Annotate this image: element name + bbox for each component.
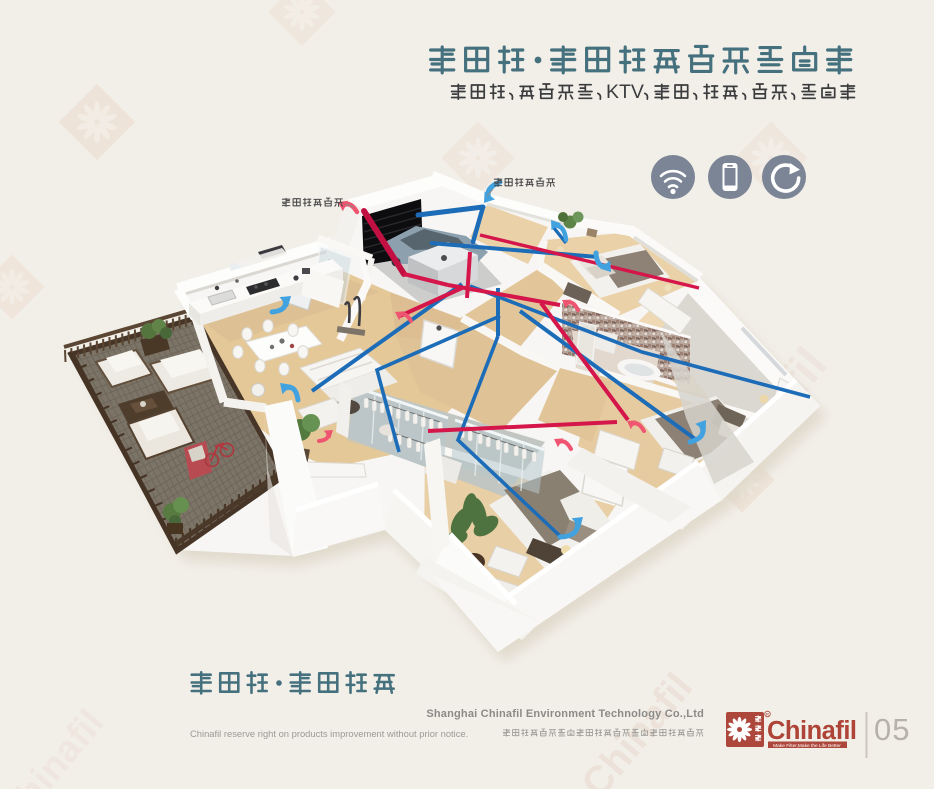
svg-text:KTV: KTV [606,81,644,103]
svg-text:Chinafil: Chinafil [767,717,857,745]
svg-text:05: 05 [874,712,910,747]
svg-text:Chinafil reserve right on prod: Chinafil reserve right on products impro… [190,728,468,739]
svg-text:Make Filter,Make the Life Bett: Make Filter,Make the Life Better [773,743,841,749]
svg-text:Shanghai Chinafil Environment: Shanghai Chinafil Environment Technology… [426,708,704,720]
